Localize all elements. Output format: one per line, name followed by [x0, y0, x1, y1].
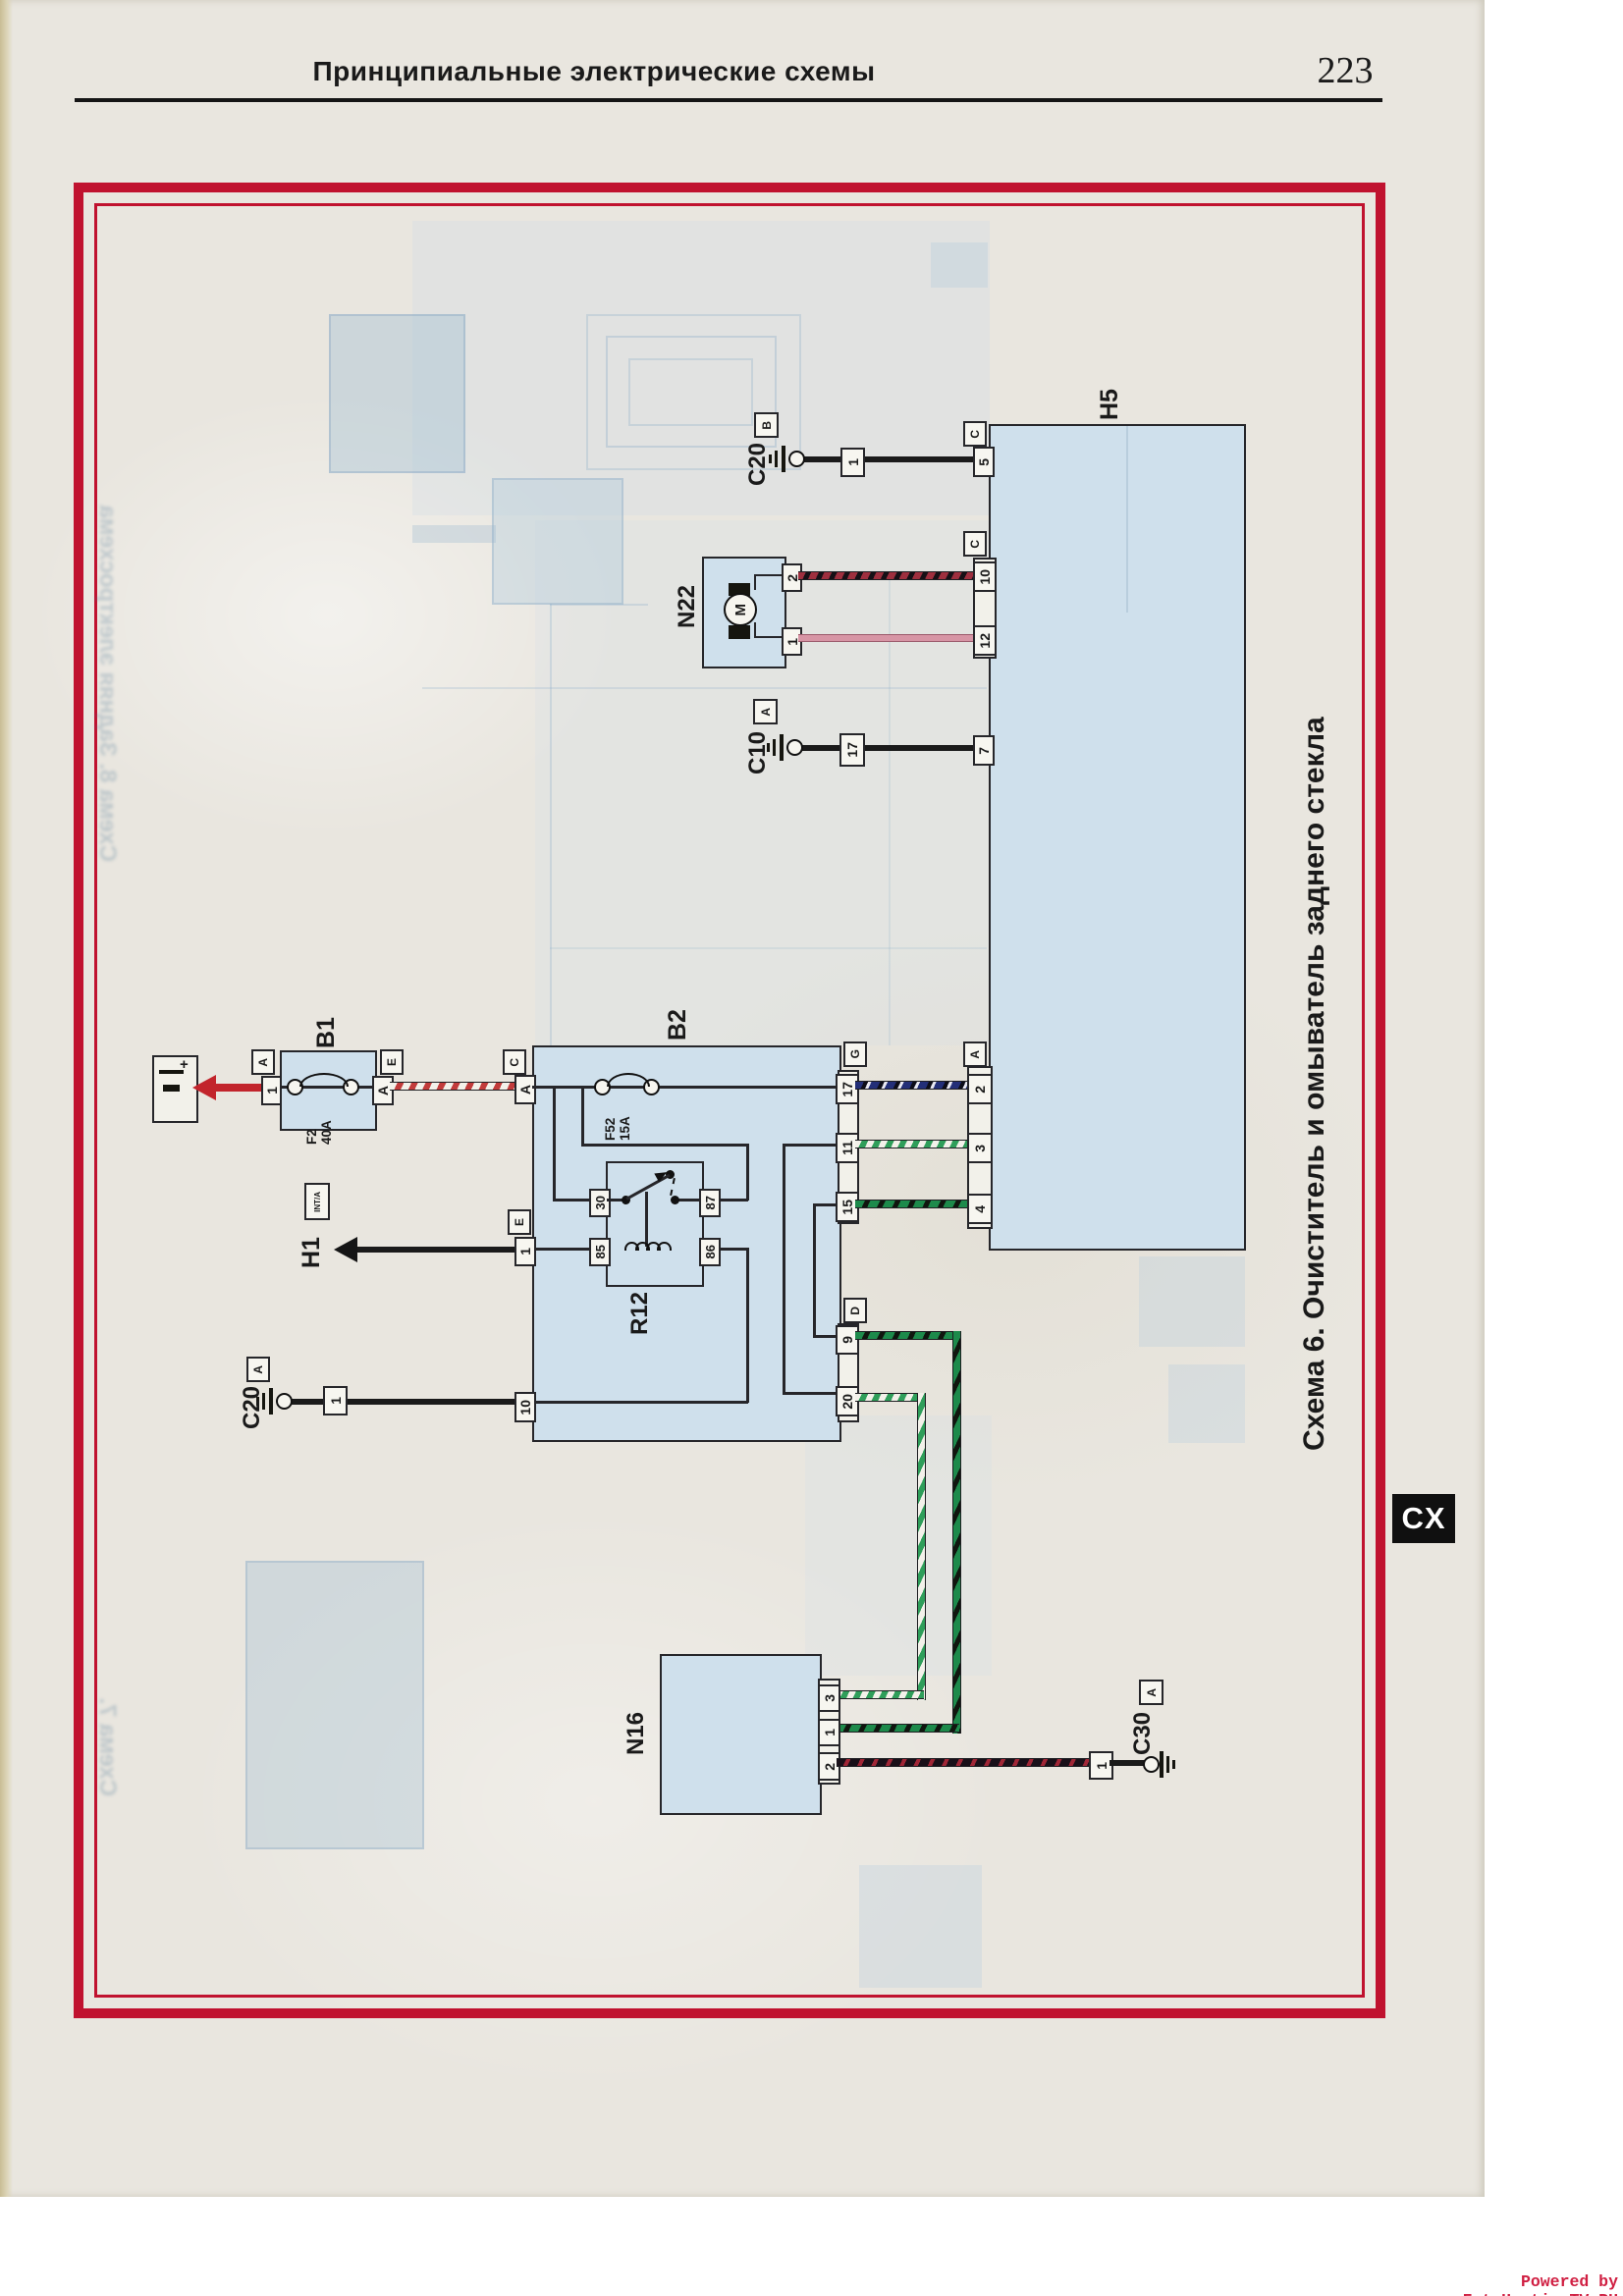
wire-internal: [783, 1144, 785, 1394]
pin-number: 12: [977, 633, 993, 649]
ghost-line: [889, 579, 891, 1045]
ground-icon: [782, 446, 785, 472]
wire-green-white: [917, 1393, 926, 1700]
ground-icon: [276, 1393, 293, 1410]
ghost-box: [859, 1865, 982, 1988]
relay-r12-box: [606, 1161, 704, 1287]
wire-internal: [813, 1203, 838, 1206]
ghost-line: [422, 687, 987, 689]
pin-number: 2: [822, 1763, 838, 1771]
connector-17: 17: [839, 733, 865, 767]
tag-a-letter: A: [759, 708, 773, 717]
pin-number: 30: [593, 1196, 608, 1209]
tag-e-letter: E: [513, 1218, 526, 1226]
ghost-box: [1168, 1364, 1245, 1443]
ghost-box: [1139, 1256, 1245, 1347]
schematic-caption: Схема 6. Очиститель и омыватель заднего …: [1298, 646, 1341, 1451]
fuse-name: F2: [304, 1129, 319, 1145]
component-b2-label: B2: [664, 1001, 692, 1041]
pin-number: 87: [703, 1196, 718, 1209]
wire-black: [353, 1247, 514, 1253]
fuse-name: F52: [603, 1118, 618, 1141]
tag-a-letter: A: [968, 1050, 982, 1059]
wire-internal: [718, 1248, 748, 1251]
wire-internal: [813, 1335, 838, 1338]
pin-number: 7: [976, 747, 992, 755]
tag-a: A: [246, 1357, 270, 1382]
tag-g-letter: G: [848, 1049, 862, 1058]
relay-coil-stem: [645, 1192, 648, 1247]
watermark: Powered by FotoHostingTV.RU: [1365, 2272, 1618, 2296]
n16-pin-1: 1: [818, 1719, 840, 1746]
pin-number: 17: [839, 1082, 855, 1097]
ghost-line: [550, 604, 648, 606]
battery-plus: +: [180, 1056, 189, 1073]
motor-letter: M: [732, 604, 749, 616]
ground-icon: [269, 1388, 273, 1415]
ground-icon: [775, 451, 778, 467]
wire-internal: [553, 1199, 592, 1201]
wire-internal: [754, 636, 783, 638]
wire-internal: [532, 1401, 748, 1404]
h5-pin-4: 4: [967, 1194, 993, 1224]
ghost-line: [550, 604, 552, 1045]
pin-letter: A: [375, 1086, 391, 1095]
pin-number: 15: [839, 1200, 855, 1215]
tag-a: A: [1139, 1680, 1163, 1705]
ground-c30-label: C30: [1129, 1704, 1157, 1755]
pin-number: 10: [977, 569, 993, 585]
pin-letter: A: [517, 1085, 533, 1095]
wire-internal: [754, 574, 756, 590]
page-spine-shadow: [0, 0, 13, 2197]
ghost-box: [245, 1561, 424, 1849]
tag-e: E: [508, 1209, 531, 1235]
tag-c-letter: C: [968, 540, 982, 549]
tag-a: A: [251, 1049, 275, 1075]
arrow-icon: [192, 1075, 216, 1100]
component-b1-label: B1: [312, 1011, 341, 1048]
fuse-rating: 15A: [618, 1116, 632, 1141]
tag-g: G: [843, 1041, 867, 1067]
pin-number: 9: [839, 1336, 855, 1344]
wire-black: [801, 456, 976, 462]
wire-green-white: [855, 1140, 967, 1148]
wire-black: [1109, 1760, 1146, 1766]
ground-icon: [773, 739, 776, 756]
tag-c-letter: C: [968, 430, 982, 439]
ghost-line: [550, 947, 987, 949]
relay-pin-30: 30: [589, 1189, 611, 1217]
pin-number: 10: [517, 1400, 533, 1415]
tag-b-letter: B: [760, 421, 774, 430]
wire-internal: [581, 1086, 584, 1147]
pin-number: 1: [264, 1087, 280, 1095]
fuse-rating: 40A: [319, 1120, 334, 1145]
ground-c20-left-label: C20: [239, 1378, 266, 1429]
pin-number: 3: [822, 1694, 838, 1702]
b1-fuse-label: F240A: [304, 1099, 334, 1145]
tag-a-letter: A: [1145, 1688, 1159, 1697]
ground-icon: [1172, 1760, 1175, 1769]
component-h5-box: [989, 424, 1246, 1251]
tag-a-letter: A: [256, 1058, 270, 1067]
pin-number: 11: [839, 1141, 855, 1155]
tag-b: B: [754, 412, 779, 438]
tag-e: E: [380, 1049, 404, 1075]
h5-pin-2: 2: [967, 1074, 993, 1104]
relay-pin-86: 86: [699, 1238, 721, 1266]
wire-internal: [783, 1144, 838, 1147]
ground-icon: [1166, 1756, 1169, 1773]
b2-pin-10: 10: [514, 1392, 536, 1422]
h5-pin-7: 7: [973, 735, 995, 766]
connector-number: 17: [844, 742, 860, 758]
connector-1-number: 1: [845, 458, 861, 466]
connector-1: 1: [840, 448, 865, 477]
pin-number: 3: [972, 1145, 988, 1152]
component-n22-label: N22: [674, 579, 701, 628]
motor-icon: M: [724, 593, 757, 626]
ground-c20-top-label: C20: [744, 435, 772, 486]
h5-pin-5: 5: [973, 447, 995, 477]
ground-icon: [786, 739, 803, 756]
wire-green-black: [837, 1724, 959, 1733]
wire-internal: [746, 1144, 749, 1201]
wire-black-red: [837, 1758, 1090, 1767]
wire-internal: [718, 1199, 748, 1201]
tag-int-a: INT/A: [304, 1183, 330, 1220]
tag-c-letter: C: [508, 1058, 521, 1067]
relay-contact-dot: [671, 1196, 679, 1204]
wire-internal: [532, 1086, 838, 1089]
wire-pink: [798, 634, 975, 642]
ghost-caption-top: Схема 8. Задняя электросхема: [93, 371, 121, 862]
ghost-line: [1126, 426, 1128, 613]
arrow-icon: [334, 1237, 357, 1262]
connector-1: 1: [323, 1386, 348, 1415]
wire-internal: [813, 1203, 816, 1337]
wire-green-black: [952, 1331, 961, 1734]
h5-pin-12: 12: [973, 625, 997, 656]
b1-pin-a: A: [372, 1076, 394, 1105]
ground-c10-label: C10: [744, 723, 772, 774]
wire-green-white: [855, 1393, 924, 1402]
pin-number: 4: [972, 1205, 988, 1213]
ground-icon: [1143, 1756, 1160, 1773]
pin-number: 85: [593, 1245, 608, 1258]
wire-internal: [532, 1248, 592, 1251]
wire-green-black: [855, 1331, 959, 1340]
page-number: 223: [1306, 49, 1384, 92]
pin-number: 1: [822, 1729, 838, 1736]
ground-icon: [780, 734, 784, 761]
page-header-title: Принципиальные электрические схемы: [290, 56, 898, 87]
component-h1-label: H1: [298, 1219, 326, 1268]
ghost-box: [931, 242, 988, 288]
motor-brush-icon: [729, 625, 750, 639]
pin-number: 1: [517, 1248, 533, 1255]
component-h5-label: H5: [1096, 377, 1124, 420]
tag-a-letter: A: [251, 1365, 265, 1374]
pin-number: 20: [839, 1394, 855, 1410]
ghost-box: [492, 478, 623, 605]
ground-icon: [788, 451, 805, 467]
wire-internal: [754, 574, 783, 576]
wire-black: [799, 745, 976, 751]
b2-pin-1: 1: [514, 1237, 536, 1266]
wire-navy-black: [855, 1081, 967, 1090]
tag-e-letter: E: [385, 1058, 399, 1066]
h5-pin-3: 3: [967, 1133, 993, 1163]
tag-a: A: [753, 699, 778, 724]
b2-pin-a: A: [514, 1075, 536, 1104]
connector-number: 1: [328, 1397, 344, 1405]
n16-pin-3: 3: [818, 1684, 840, 1712]
header-rule: [75, 98, 1382, 102]
wire-internal: [581, 1144, 748, 1147]
ghost-outline: [628, 358, 753, 426]
tag-c: C: [963, 531, 987, 557]
tag-c: C: [503, 1049, 526, 1075]
pin-number: 2: [972, 1086, 988, 1094]
connector-number: 1: [1094, 1762, 1109, 1770]
ghost-box: [329, 314, 465, 473]
tag-d: D: [843, 1298, 867, 1323]
h5-pin-10: 10: [973, 561, 997, 592]
b2-fuse-label: F5215A: [603, 1095, 632, 1141]
ground-icon: [1160, 1751, 1163, 1778]
ghost-band: [412, 525, 496, 543]
wire-red-white: [390, 1082, 515, 1091]
wire-green-black: [855, 1200, 967, 1208]
tag-d-letter: D: [848, 1307, 862, 1315]
wire-internal: [783, 1392, 838, 1395]
component-n16-label: N16: [622, 1704, 650, 1755]
relay-r12-label: R12: [626, 1280, 654, 1335]
wire-red-black: [798, 571, 975, 580]
wire-internal: [746, 1248, 749, 1403]
tag-c: C: [963, 421, 987, 447]
relay-coil-icon: [657, 1242, 672, 1251]
section-tab: CX: [1392, 1494, 1455, 1543]
relay-pin-85: 85: [589, 1238, 611, 1266]
scanned-page: Принципиальные электрические схемы 223 С…: [0, 0, 1623, 2296]
wire-internal: [553, 1086, 556, 1201]
pin-number: 5: [976, 458, 992, 466]
wire-green-white: [837, 1690, 924, 1699]
relay-pin-87: 87: [699, 1189, 721, 1217]
wire-red: [214, 1084, 263, 1092]
battery-plate: [163, 1085, 180, 1092]
tag-int-a-text: INT/A: [313, 1192, 322, 1212]
ghost-wash: [805, 1415, 992, 1676]
b2-pin-9: 9: [836, 1325, 859, 1355]
tag-a: A: [963, 1041, 987, 1067]
ghost-caption-bottom: Схема 7.: [93, 1539, 121, 1796]
pin-number: 86: [703, 1245, 718, 1258]
component-n16-box: [660, 1654, 822, 1815]
